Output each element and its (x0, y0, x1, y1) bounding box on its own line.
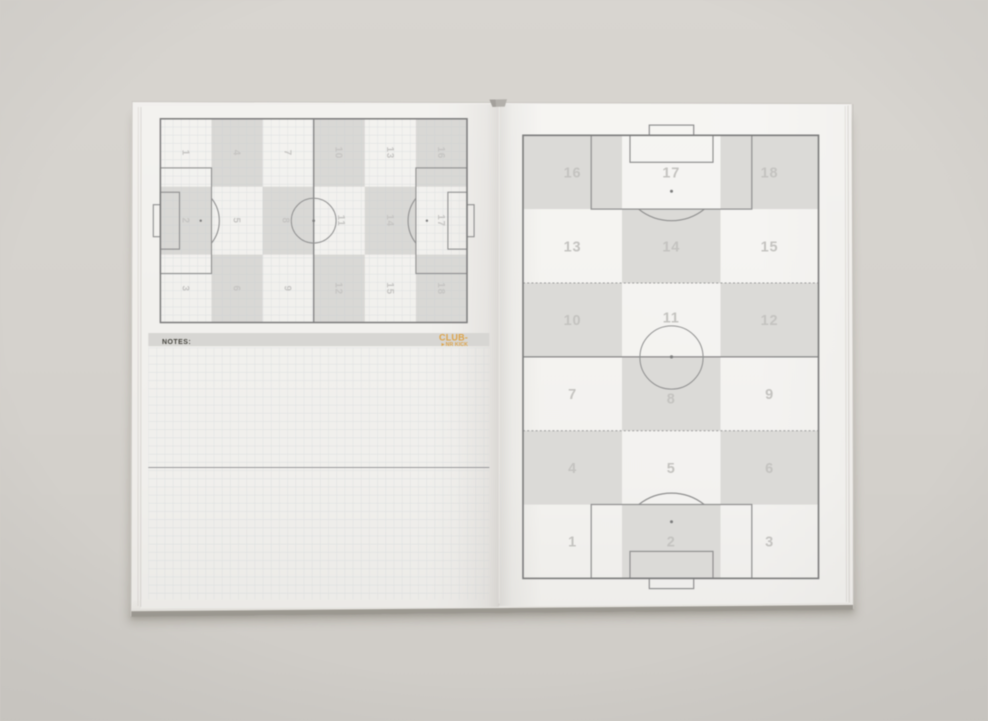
svg-text:13: 13 (564, 239, 582, 255)
svg-text:6: 6 (765, 461, 774, 477)
svg-text:14: 14 (384, 214, 395, 226)
svg-text:5: 5 (667, 461, 676, 477)
svg-text:11: 11 (663, 311, 680, 327)
svg-text:4: 4 (231, 150, 242, 156)
svg-text:2: 2 (179, 218, 190, 224)
svg-text:14: 14 (662, 239, 680, 255)
svg-text:1: 1 (568, 535, 577, 551)
svg-text:12: 12 (761, 313, 779, 329)
svg-text:NOTES:: NOTES: (162, 339, 191, 346)
svg-text:10: 10 (333, 147, 344, 159)
svg-text:11: 11 (335, 215, 346, 227)
svg-text:1: 1 (179, 150, 190, 156)
svg-text:13: 13 (384, 147, 395, 159)
svg-text:4: 4 (568, 461, 577, 477)
svg-text:16: 16 (564, 165, 582, 181)
svg-text:8: 8 (279, 218, 290, 224)
svg-text:7: 7 (282, 150, 293, 156)
svg-text:18: 18 (435, 282, 446, 294)
svg-text:►NR KICK: ►NR KICK (440, 342, 468, 348)
svg-text:3: 3 (179, 286, 190, 292)
svg-text:5: 5 (231, 218, 242, 224)
svg-text:8: 8 (667, 392, 676, 408)
svg-text:18: 18 (761, 165, 779, 181)
svg-text:16: 16 (435, 147, 446, 159)
svg-text:7: 7 (568, 387, 577, 403)
svg-text:2: 2 (667, 535, 676, 551)
svg-text:15: 15 (761, 239, 779, 255)
svg-text:15: 15 (384, 282, 395, 294)
svg-text:9: 9 (765, 387, 774, 403)
svg-text:17: 17 (662, 165, 680, 181)
svg-text:9: 9 (282, 286, 293, 292)
svg-text:12: 12 (333, 282, 344, 294)
svg-text:10: 10 (564, 313, 582, 329)
svg-text:6: 6 (231, 286, 242, 292)
svg-text:3: 3 (765, 535, 774, 551)
svg-text:17: 17 (435, 214, 446, 226)
